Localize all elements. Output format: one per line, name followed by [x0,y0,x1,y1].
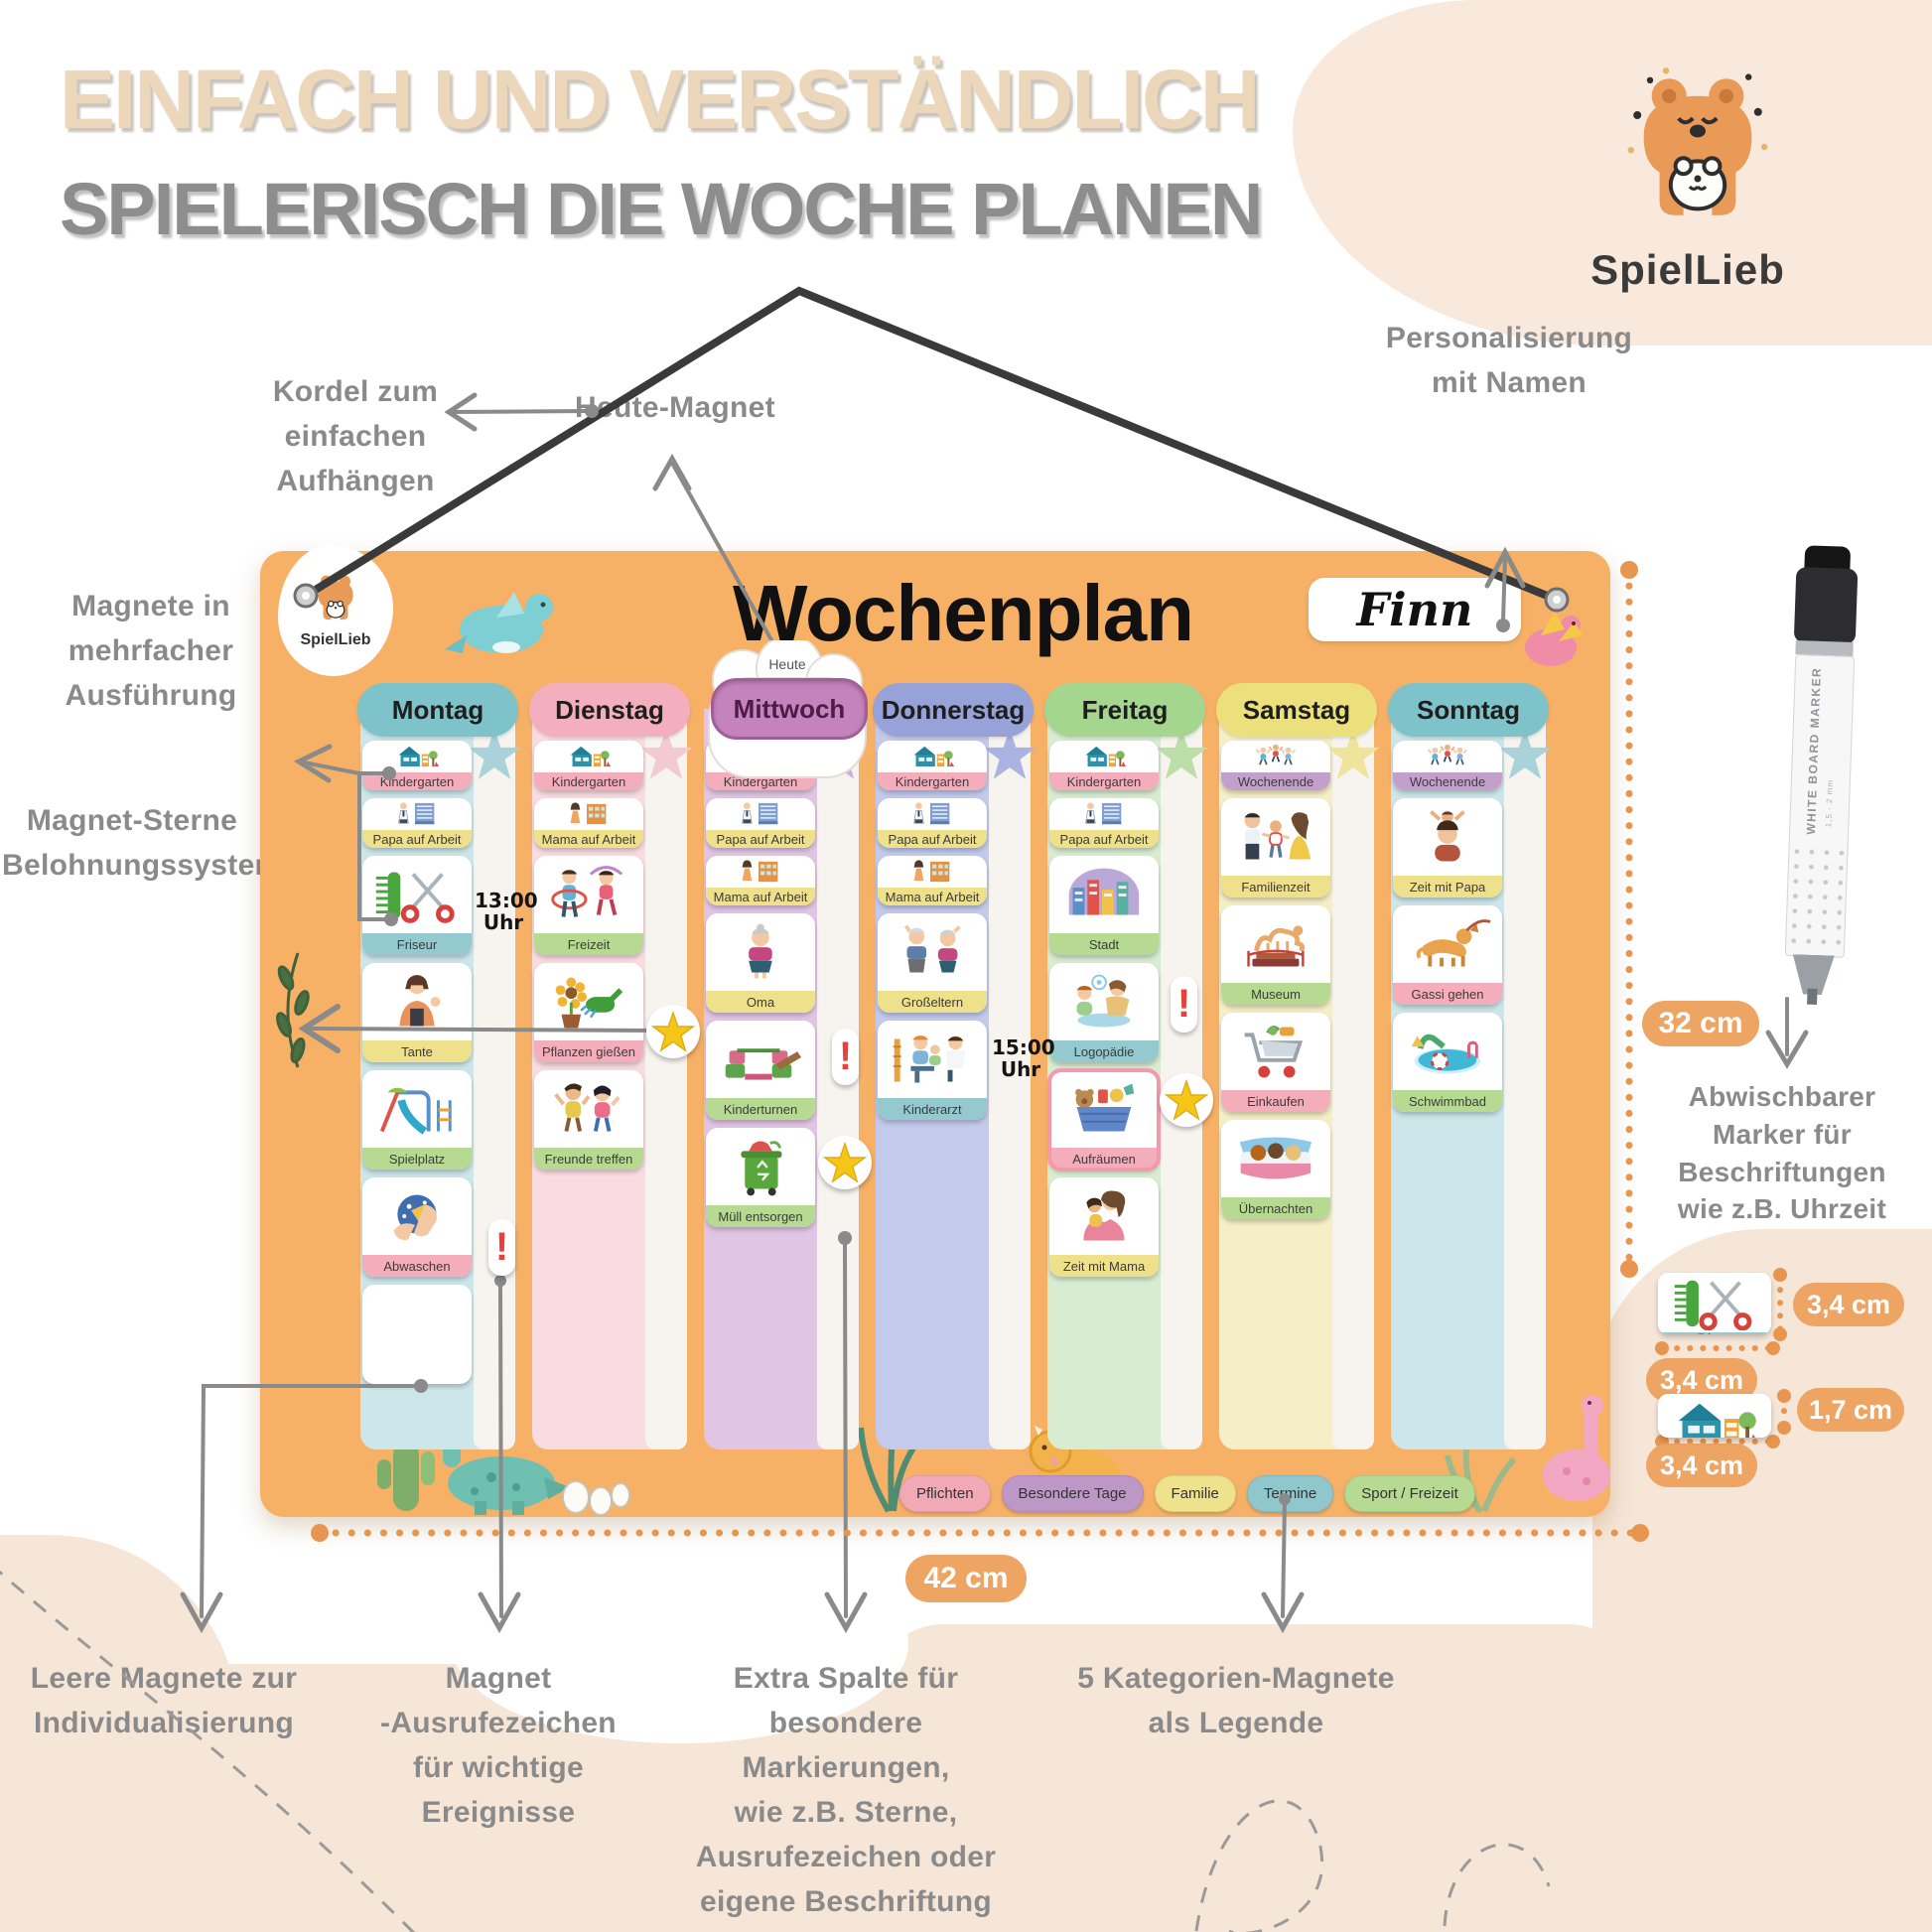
magnet-label: Papa auf Arbeit [1049,830,1159,848]
day-column-samstag: SamstagWochenendeFamilienzeitMuseumEinka… [1221,683,1372,1459]
magnet-pflanzen[interactable]: Pflanzen gießen [534,963,643,1062]
magnet-label: Wochenende [1393,772,1502,790]
grosseltern-icon [878,913,987,991]
measure-42cm: 42 cm [905,1555,1027,1602]
spielplatz-icon [362,1070,472,1148]
magnet-label: Zeit mit Papa [1393,876,1502,897]
page: EINFACH UND VERSTÄNDLICH SPIELERISCH DIE… [0,0,1932,1932]
magnet-label: Oma [706,991,815,1013]
magnet-einkaufen[interactable]: Einkaufen [1221,1013,1330,1112]
whiteboard-marker: WHITE BOARD MARKER 1,5 - 2 mm [1779,545,1864,1012]
magnet-spielplatz[interactable]: Spielplatz [362,1070,472,1170]
day-column-freitag: FreitagKindergartenPapa auf ArbeitStadtL… [1049,683,1200,1459]
legend-yellow[interactable]: Familie [1155,1475,1236,1512]
magnet-label: Kinderarzt [878,1098,987,1120]
magnet-mama-work[interactable]: Mama auf Arbeit [878,856,987,905]
magnet-label: Papa auf Arbeit [878,830,987,848]
day-header-samstag: Samstag [1216,683,1377,737]
magnet-stack: KindergartenPapa auf ArbeitMama auf Arbe… [878,741,987,1120]
marker-sublabel: 1,5 - 2 mm [1824,668,1839,827]
stadt-icon [1049,856,1159,933]
magnet-kindergarten[interactable]: Kindergarten [878,741,987,790]
measure-32cm: 32 cm [1642,1001,1759,1046]
day-column-sonntag: SonntagWochenendeZeit mit PapaGassi gehe… [1393,683,1544,1459]
measure-sample2-height: 1,7 cm [1797,1388,1904,1432]
magnet-label: Mama auf Arbeit [534,830,643,848]
kinderarzt-icon [878,1021,987,1098]
blank-icon [362,1285,472,1384]
day-header-donnerstag: Donnerstag [873,683,1034,737]
dino-pink-icon [1525,612,1583,666]
annotation-heute: Heute-Magnet [556,385,794,430]
magnet-schwimmbad[interactable]: Schwimmbad [1393,1013,1502,1112]
right-beige [1592,1229,1932,1932]
name-tag[interactable]: Finn [1309,578,1521,641]
wochenende-icon [1221,741,1330,772]
magnet-stack: KindergartenMama auf ArbeitFreizeitPflan… [534,741,643,1170]
magnet-papa-work[interactable]: Papa auf Arbeit [878,798,987,848]
magnet-label: Aufräumen [1049,1148,1159,1170]
sample-magnet-kindergarten: Kindergarten [1658,1394,1771,1438]
kinderturnen-icon [706,1021,815,1098]
zeit-mama-icon [1049,1177,1159,1255]
magnet-oma[interactable]: Oma [706,913,815,1013]
tante-icon [362,963,472,1040]
board-logo: SpielLieb [278,545,393,676]
magnet-label: Friseur [362,933,472,955]
mama-work-icon [878,856,987,888]
magnet-label: Müll entsorgen [706,1205,815,1227]
magnet-freunde[interactable]: Freunde treffen [534,1070,643,1170]
brand-bear-icon [1618,68,1777,242]
freizeit-icon [534,856,643,933]
magnet-kindergarten[interactable]: Kindergarten [362,741,472,790]
day-column-montag: MontagKindergartenPapa auf ArbeitFriseur… [362,683,513,1459]
familienzeit-icon [1221,798,1330,876]
zeit-papa-icon [1393,798,1502,876]
muell-icon [706,1128,815,1205]
wochenende-icon [1393,741,1502,772]
freunde-icon [534,1070,643,1148]
magnet-label: Kindergarten [534,772,643,790]
exclamation-magnet[interactable]: ! [1171,976,1197,1033]
magnet-label: Papa auf Arbeit [706,830,815,848]
magnet-wochenende[interactable]: Wochenende [1393,741,1502,790]
annotation-kordel: Kordel zum einfachen Aufhängen [207,369,504,503]
marker-body: WHITE BOARD MARKER 1,5 - 2 mm [1785,654,1856,958]
magnet-label: Kindergarten [878,772,987,790]
magnet-label: Logopädie [1049,1040,1159,1062]
magnet-label: Einkaufen [1221,1090,1330,1112]
kindergarten-icon [1049,741,1159,772]
magnet-mama-work[interactable]: Mama auf Arbeit [706,856,815,905]
abwaschen-icon [362,1177,472,1255]
magnet-kinderturnen[interactable]: Kinderturnen [706,1021,815,1120]
leaf-decoration [275,953,311,1067]
day-header-dienstag: Dienstag [529,683,690,737]
star-magnet[interactable] [646,1005,700,1058]
magnet-stack: KindergartenPapa auf ArbeitMama auf Arbe… [706,741,815,1227]
handwritten-time: 13:00 Uhr [475,890,532,933]
magnet-familienzeit[interactable]: Familienzeit [1221,798,1330,897]
magnet-label: Tante [362,1040,472,1062]
friseur-icon [362,856,472,933]
kindergarten-icon [878,741,987,772]
day-header-montag: Montag [357,683,518,737]
magnet-grosseltern[interactable]: Großeltern [878,913,987,1013]
magnet-zeit-mama[interactable]: Zeit mit Mama [1049,1177,1159,1277]
headline-line1: EINFACH UND VERSTÄNDLICH [60,52,1258,148]
sample-magnet-friseur: Friseur [1658,1273,1771,1334]
uebernachten-icon [1221,1120,1330,1197]
magnet-papa-work[interactable]: Papa auf Arbeit [706,798,815,848]
magnet-label: Stadt [1049,933,1159,955]
dino-eggs-icon [563,1481,629,1515]
magnet-label: Übernachten [1221,1197,1330,1219]
magnet-label: Mama auf Arbeit [706,888,815,905]
magnet-aufraeumen[interactable]: Aufräumen [1049,1070,1159,1170]
magnet-papa-work[interactable]: Papa auf Arbeit [362,798,472,848]
magnet-label: Abwaschen [362,1255,472,1277]
marker-label: WHITE BOARD MARKER [1804,666,1824,835]
kindergarten-icon [362,741,472,772]
brand-name: SpielLieb [1549,246,1827,294]
magnet-label: Mama auf Arbeit [878,888,987,905]
pflanzen-icon [534,963,643,1040]
magnet-abwaschen[interactable]: Abwaschen [362,1177,472,1277]
einkaufen-icon [1221,1013,1330,1090]
magnet-wochenende[interactable]: Wochenende [1221,741,1330,790]
today-day: Mittwoch [711,678,868,740]
magnet-label: Großeltern [878,991,987,1013]
papa-work-icon [706,798,815,830]
kindergarten-icon [534,741,643,772]
magnet-stack: KindergartenPapa auf ArbeitStadtLogopädi… [1049,741,1159,1277]
aufraeumen-icon [1049,1070,1159,1148]
magnet-label: Wochenende [1221,772,1330,790]
magnet-uebernachten[interactable]: Übernachten [1221,1120,1330,1219]
magnet-kindergarten[interactable]: Kindergarten [534,741,643,790]
magnet-stack: WochenendeZeit mit PapaGassi gehenSchwim… [1393,741,1502,1112]
magnet-label: Freizeit [534,933,643,955]
papa-work-icon [1049,798,1159,830]
magnet-label: Museum [1221,983,1330,1005]
magnet-blank[interactable] [362,1285,472,1384]
magnet-tante[interactable]: Tante [362,963,472,1062]
extra-column [1504,713,1546,1449]
gassi-icon [1393,905,1502,983]
magnet-logopaedie[interactable]: Logopädie [1049,963,1159,1062]
mama-work-icon [706,856,815,888]
annotation-kategorien: 5 Kategorien-Magnete als Legende [1077,1656,1395,1745]
measure-sample2-width: 3,4 cm [1646,1444,1757,1487]
magnet-label: Spielplatz [362,1148,472,1170]
annotation-marker: Abwischbarer Marker für Beschriftungen w… [1638,1078,1926,1228]
star-magnet[interactable] [818,1136,872,1189]
magnet-label: Pflanzen gießen [534,1040,643,1062]
papa-work-icon [362,798,472,830]
today-label: Heute [695,656,880,672]
annotation-extra-spalte: Extra Spalte für besondere Markierungen,… [667,1656,1025,1924]
headline-line2: SPIELERISCH DIE WOCHE PLANEN [60,167,1261,251]
magnet-label: Gassi gehen [1393,983,1502,1005]
magnet-label: Familienzeit [1221,876,1330,897]
magnet-gassi[interactable]: Gassi gehen [1393,905,1502,1005]
magnet-label: Schwimmbad [1393,1090,1502,1112]
dino-pink2-icon [1543,1395,1610,1501]
measure-sample1-height: 3,4 cm [1793,1283,1904,1326]
mama-work-icon [534,798,643,830]
legend-purple[interactable]: Besondere Tage [1002,1475,1144,1512]
magnet-muell[interactable]: Müll entsorgen [706,1128,815,1227]
extra-column [1332,713,1374,1449]
legend-row: PflichtenBesondere TageFamilieTermineSpo… [899,1475,1475,1512]
magnet-label: Kindergarten [362,772,472,790]
magnet-museum[interactable]: Museum [1221,905,1330,1005]
magnet-label: Freunde treffen [534,1148,643,1170]
day-header-sonntag: Sonntag [1388,683,1549,737]
extra-column [645,713,687,1449]
magnet-zeit-papa[interactable]: Zeit mit Papa [1393,798,1502,897]
magnet-freizeit[interactable]: Freizeit [534,856,643,955]
annotation-sterne: Magnet-Sterne Belohnungssystem [2,798,262,888]
logopaedie-icon [1049,963,1159,1040]
papa-work-icon [878,798,987,830]
magnet-mama-work[interactable]: Mama auf Arbeit [534,798,643,848]
marker-cap [1794,567,1859,644]
magnet-label: Kindergarten [1049,772,1159,790]
annotation-magnete: Magnete in mehrfacher Ausführung [22,584,280,718]
magnet-papa-work[interactable]: Papa auf Arbeit [1049,798,1159,848]
magnet-friseur[interactable]: Friseur [362,856,472,955]
dino-teal-icon [445,592,553,653]
extra-column [989,713,1031,1449]
magnet-stadt[interactable]: Stadt [1049,856,1159,955]
today-magnet[interactable]: Heute Mittwoch [695,640,880,791]
handwritten-time: 15:00 Uhr [992,1036,1049,1080]
legend-green[interactable]: Sport / Freizeit [1344,1475,1475,1512]
annotation-ausrufezeichen: Magnet -Ausrufezeichen für wichtige Erei… [349,1656,647,1835]
star-magnet[interactable] [1160,1073,1213,1127]
day-header-freitag: Freitag [1044,683,1205,737]
magnet-label: Zeit mit Mama [1049,1255,1159,1277]
museum-icon [1221,905,1330,983]
magnet-kinderarzt[interactable]: Kinderarzt [878,1021,987,1120]
day-column-dienstag: DienstagKindergartenMama auf ArbeitFreiz… [534,683,685,1459]
annotation-personalisierung: Personalisierung mit Namen [1365,316,1653,405]
exclamation-magnet[interactable]: ! [488,1219,515,1276]
magnet-kindergarten[interactable]: Kindergarten [1049,741,1159,790]
legend-pink[interactable]: Pflichten [899,1475,991,1512]
extra-column [474,713,515,1449]
magnet-label: Kinderturnen [706,1098,815,1120]
exclamation-magnet[interactable]: ! [832,1029,859,1085]
annotation-leere: Leere Magnete zur Individualisierung [25,1656,303,1745]
schwimmbad-icon [1393,1013,1502,1090]
magnet-stack: KindergartenPapa auf ArbeitFriseurTanteS… [362,741,472,1384]
magnet-stack: WochenendeFamilienzeitMuseumEinkaufenÜbe… [1221,741,1330,1219]
oma-icon [706,913,815,991]
magnet-label: Papa auf Arbeit [362,830,472,848]
legend-teal[interactable]: Termine [1247,1475,1333,1512]
